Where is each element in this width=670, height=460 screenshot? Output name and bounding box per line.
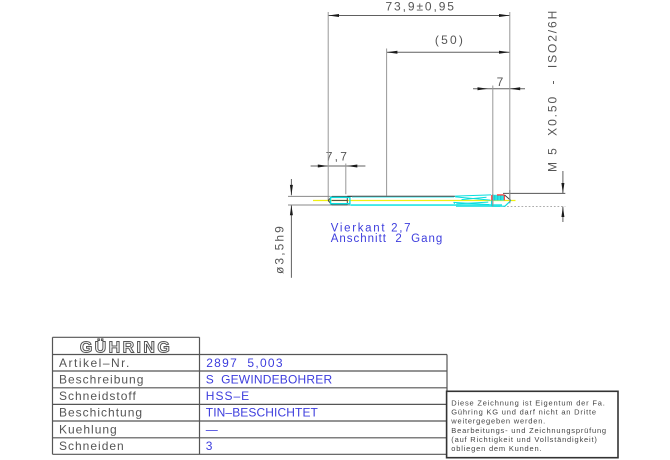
svg-text:ø3,5h9: ø3,5h9 [273,224,287,274]
svg-text:Gühring KG und darf nicht an D: Gühring KG und darf nicht an Dritte [451,408,597,417]
svg-text:7: 7 [497,75,504,89]
svg-text:TIN–BESCHICHTET: TIN–BESCHICHTET [206,406,319,420]
svg-text:3: 3 [206,439,214,453]
svg-text:(auf Richtigkeit und Vollständ: (auf Richtigkeit und Vollständigkeit) [451,435,597,444]
svg-text:Diese Zeichnung ist Eigentum d: Diese Zeichnung ist Eigentum der Fa. [451,399,605,408]
svg-text:Kuehlung: Kuehlung [59,422,118,436]
svg-text:Schneidstoff: Schneidstoff [59,389,137,403]
svg-text:weitergegeben werden.: weitergegeben werden. [450,417,546,426]
svg-text:M 5 X0.50 - ISO2/6H: M 5 X0.50 - ISO2/6H [546,9,560,172]
svg-text:2897 5,003: 2897 5,003 [206,356,284,370]
svg-text:(50): (50) [435,33,465,47]
svg-text:Schneiden: Schneiden [59,439,125,453]
svg-text:Beschreibung: Beschreibung [59,373,144,387]
svg-text:S GEWINDEBOHRER: S GEWINDEBOHRER [206,373,333,387]
svg-text:HSS–E: HSS–E [206,389,250,403]
svg-text:Artikel–Nr.: Artikel–Nr. [59,356,131,370]
svg-text:GÜHRING: GÜHRING [80,338,172,357]
svg-text:Anschnitt 2 Gang: Anschnitt 2 Gang [331,233,444,245]
svg-text:7,7: 7,7 [326,149,350,163]
svg-text:Beschichtung: Beschichtung [59,406,143,420]
svg-text:obliegen dem Kunden.: obliegen dem Kunden. [451,444,542,453]
svg-text:—: — [206,422,219,436]
svg-text:Bearbeitungs- und Zeichnungspr: Bearbeitungs- und Zeichnungsprüfung [451,426,607,435]
svg-text:73,9±0,95: 73,9±0,95 [385,0,455,14]
